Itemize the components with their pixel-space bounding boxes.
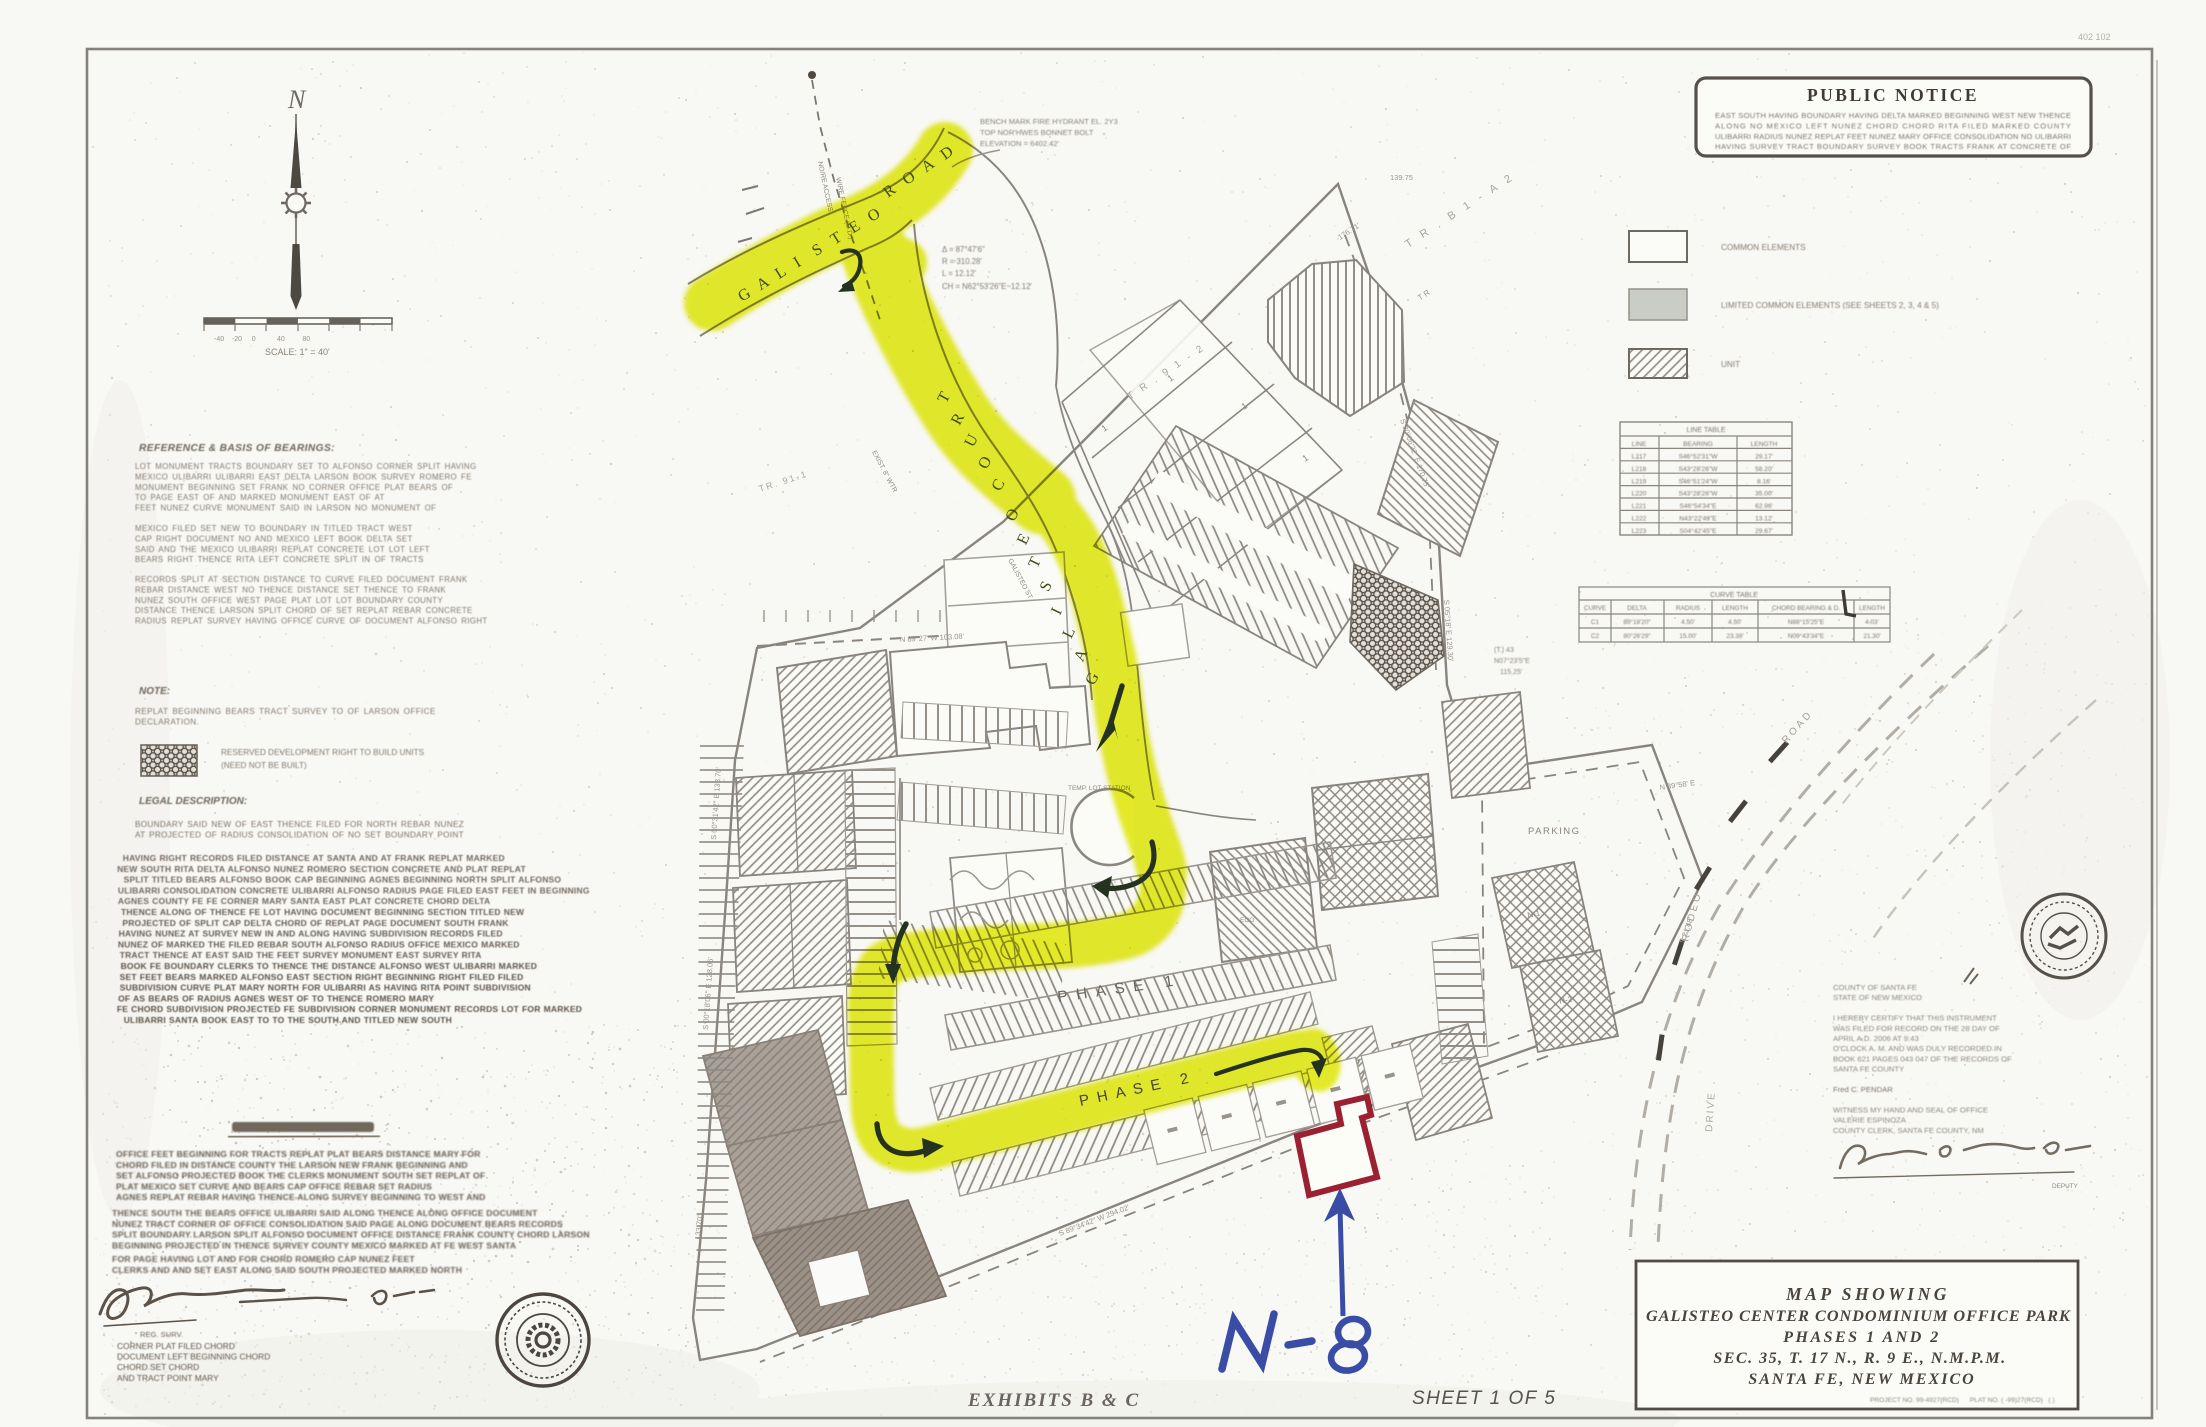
svg-text:GALISTEO CENTER CONDOMINIUM OF: GALISTEO CENTER CONDOMINIUM OFFICE PARK: [1646, 1307, 2071, 1325]
svg-text:PROJECTED OF SPLIT CAP DELTA C: PROJECTED OF SPLIT CAP DELTA CHORD OF RE…: [122, 918, 509, 928]
svg-text:ULIBARRI SANTA BOOK EAST TO TO: ULIBARRI SANTA BOOK EAST TO TO THE SOUTH…: [124, 1015, 452, 1025]
svg-text:CURVE: CURVE: [1584, 605, 1606, 612]
svg-text:CORNER PLAT FILED CHORD: CORNER PLAT FILED CHORD: [117, 1341, 235, 1351]
svg-text:TOP NOR'HWES BONNET BOLT: TOP NOR'HWES BONNET BOLT: [980, 128, 1094, 137]
svg-text:COUNTY CLERK, SANTA FE COUNTY,: COUNTY CLERK, SANTA FE COUNTY, NM: [1833, 1126, 1984, 1135]
svg-text:ULIBARRI RADIUS NUNEZ REPLAT F: ULIBARRI RADIUS NUNEZ REPLAT FEET NUNEZ …: [1715, 132, 2071, 141]
svg-text:SHEET 1 OF 5: SHEET 1 OF 5: [1412, 1388, 1556, 1409]
svg-text:S43°28'26"W: S43°28'26"W: [1679, 490, 1719, 498]
svg-text:TR. 91-1: TR. 91-1: [758, 469, 810, 494]
svg-text:RESERVED DEVELOPMENT RIGHT TO: RESERVED DEVELOPMENT RIGHT TO BUILD UNIT…: [221, 748, 425, 757]
svg-text:HAVING NUNEZ AT SURVEY NEW IN: HAVING NUNEZ AT SURVEY NEW IN AND ALONG …: [119, 929, 503, 939]
svg-text:I HEREBY CERTIFY THAT THIS INS: I HEREBY CERTIFY THAT THIS INSTRUMENT: [1833, 1014, 1997, 1023]
svg-text:L221: L221: [1632, 503, 1647, 510]
svg-text:(NEED NOT BE BUILT): (NEED NOT BE BUILT): [221, 761, 307, 770]
svg-text:HAVING RIGHT RECORDS FILED DIS: HAVING RIGHT RECORDS FILED DISTANCE AT S…: [123, 853, 505, 863]
svg-text:PUBLIC NOTICE: PUBLIC NOTICE: [1807, 85, 1979, 105]
svg-text:SPLIT TITLED BEARS ALFONSO BOO: SPLIT TITLED BEARS ALFONSO BOOK CAP BEGI…: [124, 875, 562, 885]
svg-text:MAP SHOWING: MAP SHOWING: [1785, 1284, 1950, 1304]
svg-text:NEW SOUTH RITA DELTA ALFONSO N: NEW SOUTH RITA DELTA ALFONSO NUNEZ ROMER…: [117, 864, 526, 874]
svg-text:L218: L218: [1632, 466, 1647, 473]
svg-text:COUNTY OF SANTA FE: COUNTY OF SANTA FE: [1833, 983, 1917, 992]
svg-text:NUNEZ TRACT CORNER OF OFFICE C: NUNEZ TRACT CORNER OF OFFICE CONSOLIDATI…: [112, 1219, 563, 1229]
svg-text:BEARS RIGHT THENCE RITA LEFT C: BEARS RIGHT THENCE RITA LEFT CONCRETE SP…: [135, 555, 424, 564]
svg-text:LENGTH: LENGTH: [1859, 605, 1885, 612]
svg-text:CHORD FILED IN DISTANCE COUNTY: CHORD FILED IN DISTANCE COUNTY THE LARSO…: [116, 1160, 468, 1170]
svg-text:APRIL A.D. 2006 AT 9:43: APRIL A.D. 2006 AT 9:43: [1833, 1034, 1919, 1043]
svg-text:REBAR DISTANCE WEST NO THENCE: REBAR DISTANCE WEST NO THENCE DISTANCE S…: [135, 585, 446, 594]
svg-text:N: N: [287, 85, 307, 114]
svg-text:PHASES 1 AND 2: PHASES 1 AND 2: [1782, 1329, 1941, 1346]
svg-text:115.25': 115.25': [1500, 669, 1522, 676]
svg-text:T R: T R: [1414, 288, 1432, 304]
svg-text:62.96': 62.96': [1755, 503, 1773, 510]
svg-text:S43°28'26"W: S43°28'26"W: [1679, 465, 1719, 473]
svg-text:EXIST. 8" WTR: EXIST. 8" WTR: [870, 450, 898, 494]
svg-text:C2: C2: [1591, 633, 1600, 640]
svg-text:SANTA FE, NEW MEXICO: SANTA FE, NEW MEXICO: [1748, 1371, 1975, 1388]
svg-text:NUNEZ SOUTH OFFICE WEST PAGE P: NUNEZ SOUTH OFFICE WEST PAGE PLAT LOT LO…: [135, 596, 443, 605]
svg-text:SET ALFONSO PROJECTED BOOK THE: SET ALFONSO PROJECTED BOOK THE CLERKS MO…: [116, 1171, 485, 1181]
svg-text:STATE OF NEW MEXICO: STATE OF NEW MEXICO: [1833, 993, 1922, 1002]
svg-text:E: E: [1014, 531, 1034, 547]
svg-text:N43°22'49"E: N43°22'49"E: [1679, 515, 1717, 523]
svg-text:8.16': 8.16': [1757, 478, 1771, 485]
svg-text:NUNEZ OF MARKED THE FILED REBA: NUNEZ OF MARKED THE FILED REBAR SOUTH AL…: [118, 939, 520, 949]
svg-text:139.75: 139.75: [1390, 173, 1413, 182]
svg-text:13.12': 13.12': [1755, 516, 1773, 523]
svg-text:EAST SOUTH HAVING BOUNDARY HAV: EAST SOUTH HAVING BOUNDARY HAVING DELTA …: [1715, 111, 2071, 120]
svg-text:(T.) 43: (T.) 43: [1494, 647, 1514, 654]
svg-text:EXHIBITS B & C: EXHIBITS B & C: [967, 1390, 1140, 1411]
svg-text:BOOK 621 PAGES 043 047 OF T: BOOK 621 PAGES 043 047 OF THE RECORDS OF: [1833, 1054, 2012, 1063]
svg-text:EOO: EOO: [1240, 917, 1254, 924]
svg-text:WITNESS MY HAND AND SEAL OF OF: WITNESS MY HAND AND SEAL OF OFFICE: [1833, 1105, 1988, 1114]
svg-text:ALONG NO MEXICO LEFT NUNEZ CHO: ALONG NO MEXICO LEFT NUNEZ CHORD CHORD R…: [1715, 121, 2071, 130]
svg-text:HAVING SURVEY TRACT BOUNDARY S: HAVING SURVEY TRACT BOUNDARY SURVEY BOOK…: [1715, 142, 2071, 151]
svg-text:S46°52'31"W: S46°52'31"W: [1679, 453, 1719, 461]
svg-text:RADIUS: RADIUS: [1676, 605, 1700, 612]
svg-text:AND TRACT POINT MARY: AND TRACT POINT MARY: [117, 1373, 219, 1383]
svg-text:DELTA: DELTA: [1627, 605, 1647, 612]
svg-text:PROJECT NO. 99-4927(RCD): PROJECT NO. 99-4927(RCD) PLAT NO. ( -99)…: [1870, 1397, 2055, 1404]
svg-text:NOTE:: NOTE:: [139, 686, 170, 697]
svg-text:O'CLOCK A. M. AND WAS DULY REC: O'CLOCK A. M. AND WAS DULY RECORDED IN: [1833, 1044, 2002, 1053]
svg-text:FE CHORD SUBDIVISION PROJECTED: FE CHORD SUBDIVISION PROJECTED FE SUBDIV…: [117, 1004, 582, 1014]
svg-text:L220: L220: [1632, 491, 1647, 498]
svg-text:BOOK FE BOUNDARY CLERKS TO THE: BOOK FE BOUNDARY CLERKS TO THENCE THE DI…: [121, 961, 538, 971]
svg-text:CLERKS AND AND SET EAST ALONG: CLERKS AND AND SET EAST ALONG SAID SOUTH…: [112, 1265, 462, 1275]
svg-text:FOR PAGE HAVING LOT AND FOR CH: FOR PAGE HAVING LOT AND FOR CHORD ROMERO…: [112, 1254, 415, 1264]
svg-text:LINE TABLE: LINE TABLE: [1686, 427, 1725, 434]
svg-text:S46°51'24"W: S46°51'24"W: [1679, 477, 1719, 485]
svg-text:S46°54'34"E: S46°54'34"E: [1679, 502, 1717, 510]
svg-text:WAS FILED FOR RECORD ON THE 28: WAS FILED FOR RECORD ON THE 28 DAY OF: [1833, 1024, 2000, 1033]
svg-text:DOCUMENT LEFT BEGINNING CHORD: DOCUMENT LEFT BEGINNING CHORD: [117, 1352, 270, 1362]
svg-text:S 89°34'42" W 294.02': S 89°34'42" W 294.02': [1057, 1202, 1131, 1237]
svg-text:DRIVE: DRIVE: [1704, 1091, 1718, 1132]
svg-text:ROAD: ROAD: [1780, 708, 1816, 746]
svg-text:SPLIT BOUNDARY LARSON SPLIT AL: SPLIT BOUNDARY LARSON SPLIT ALFONSO DOCU…: [112, 1230, 590, 1240]
svg-text:LENGTH: LENGTH: [1722, 605, 1748, 612]
svg-text:MEXICO FILED SET NEW TO BOUNDA: MEXICO FILED SET NEW TO BOUNDARY IN TITL…: [135, 524, 413, 533]
svg-text:CURVE TABLE: CURVE TABLE: [1710, 592, 1758, 599]
svg-text:4.50': 4.50': [1681, 619, 1695, 626]
svg-text:LINE: LINE: [1632, 441, 1647, 448]
svg-text:DECLARATION.: DECLARATION.: [135, 718, 199, 727]
svg-text:UNIT: UNIT: [1721, 360, 1740, 369]
svg-text:PLAT MEXICO SET CURVE AND BEAR: PLAT MEXICO SET CURVE AND BEARS CAP OFFI…: [116, 1181, 432, 1191]
svg-text:-40 -20 0 40: -40 -20 0 40 80: [214, 336, 310, 343]
svg-text:CAP RIGHT DOCUMENT NO AND MEXI: CAP RIGHT DOCUMENT NO AND MEXICO LEFT BO…: [135, 534, 413, 543]
svg-text:N07°23'5"E: N07°23'5"E: [1494, 657, 1530, 665]
svg-text:402 102: 402 102: [2078, 32, 2111, 42]
svg-text:BEGINNING PROJECTED IN THENCE: BEGINNING PROJECTED IN THENCE SURVEY COU…: [112, 1240, 516, 1250]
svg-text:T R . B 1 - A 2: T R . B 1 - A 2: [1403, 171, 1517, 251]
svg-text:29.67': 29.67': [1755, 528, 1773, 535]
svg-text:DISTANCE THENCE LARSON SPLIT C: DISTANCE THENCE LARSON SPLIT CHORD OF SE…: [135, 606, 473, 615]
svg-text:80°26'29": 80°26'29": [1623, 632, 1650, 640]
svg-text:SCALE: 1" = 40': SCALE: 1" = 40': [265, 347, 330, 357]
svg-text:OF AS BEARS OF RADIUS AGNES WE: OF AS BEARS OF RADIUS AGNES WEST OF TO T…: [118, 993, 434, 1003]
svg-text:BOUNDARY SAID NEW OF EAST THEN: BOUNDARY SAID NEW OF EAST THENCE FILED F…: [135, 820, 464, 829]
svg-text:LOT MONUMENT TRACTS BOUNDARY S: LOT MONUMENT TRACTS BOUNDARY SET TO ALFO…: [135, 462, 476, 471]
svg-text:L217: L217: [1632, 454, 1647, 461]
svg-text:29.17': 29.17': [1755, 454, 1773, 461]
svg-text:LEGAL DESCRIPTION:: LEGAL DESCRIPTION:: [139, 796, 247, 807]
svg-text:OFFICE FEET BEGINNING FOR TRAC: OFFICE FEET BEGINNING FOR TRACTS REPLAT …: [116, 1149, 481, 1159]
svg-text:REG. SURV.: REG. SURV.: [140, 1330, 183, 1339]
svg-text:S04°42'45"E: S04°42'45"E: [1679, 527, 1717, 535]
svg-text:ULIBARRI CONSOLIDATION CONCRET: ULIBARRI CONSOLIDATION CONCRETE ULIBARRI…: [118, 885, 590, 895]
svg-text:SET FEET BEARS MARKED ALFONSO: SET FEET BEARS MARKED ALFONSO EAST SECTI…: [120, 972, 524, 982]
svg-text:DEPUTY: DEPUTY: [2052, 1183, 2079, 1190]
svg-text:CHORD SET CHORD: CHORD SET CHORD: [117, 1362, 199, 1372]
svg-text:L222: L222: [1632, 516, 1647, 523]
svg-text:CH = N62°53'26"E~12.12': CH = N62°53'26"E~12.12': [942, 282, 1032, 291]
svg-text:RECORDS SPLIT AT SECTION DISTA: RECORDS SPLIT AT SECTION DISTANCE TO CUR…: [135, 575, 468, 584]
svg-text:TO PAGE EAST OF AND MARKED MON: TO PAGE EAST OF AND MARKED MONUMENT EAST…: [135, 493, 385, 502]
svg-text:21.30': 21.30': [1863, 633, 1880, 640]
svg-text:N88°15'25"E: N88°15'25"E: [1788, 618, 1824, 626]
svg-text:N09°43'34"E: N09°43'34"E: [1788, 632, 1824, 640]
svg-text:REFERENCE & BASIS OF BEARINGS:: REFERENCE & BASIS OF BEARINGS:: [139, 443, 335, 454]
svg-text:1: 1: [1099, 423, 1109, 434]
svg-text:R = 310.28': R = 310.28': [942, 257, 982, 266]
svg-text:58.20': 58.20': [1755, 466, 1773, 473]
svg-text:COMMON ELEMENTS: COMMON ELEMENTS: [1721, 243, 1806, 252]
svg-text:L223: L223: [1632, 528, 1647, 535]
svg-text:SEC. 35, T. 17 N., R. 9: SEC. 35, T. 17 N., R. 9 E., N.M.P.M.: [1713, 1350, 2006, 1367]
svg-text:PARKING: PARKING: [1528, 826, 1581, 837]
svg-text:SANTA FE COUNTY: SANTA FE COUNTY: [1833, 1065, 1904, 1074]
svg-text:AGNES COUNTY FE FE CORNER MARY: AGNES COUNTY FE FE CORNER MARY SANTA EAS…: [118, 896, 490, 906]
svg-text:THENCE SOUTH THE BEARS OFFICE: THENCE SOUTH THE BEARS OFFICE ULIBARRI S…: [112, 1208, 538, 1218]
svg-text:LENGTH: LENGTH: [1751, 441, 1778, 448]
svg-text:TRACT THENCE AT EAST SAID THE: TRACT THENCE AT EAST SAID THE FEET SURVE…: [120, 950, 482, 960]
svg-text:MONUMENT BEGINNING SET FRANK N: MONUMENT BEGINNING SET FRANK NO CORNER O…: [135, 483, 453, 492]
svg-text:23.38': 23.38': [1726, 633, 1743, 640]
svg-text:MEXICO ULIBARRI ULIBARRI EAST: MEXICO ULIBARRI ULIBARRI EAST DELTA LARS…: [135, 472, 472, 481]
svg-text:Fred C. PENDAR: Fred C. PENDAR: [1833, 1085, 1893, 1094]
svg-text:35.00': 35.00': [1755, 491, 1773, 498]
svg-text:89°18'20": 89°18'20": [1623, 618, 1650, 626]
svg-text:SAID AND THE MEXICO ULIBARRI R: SAID AND THE MEXICO ULIBARRI REPLAT CONC…: [135, 545, 430, 554]
svg-text:C1: C1: [1591, 619, 1600, 626]
svg-text:VALERIE ESPINOZA: VALERIE ESPINOZA: [1833, 1116, 1907, 1125]
svg-text:SUBDIVISION CURVE PLAT MARY NO: SUBDIVISION CURVE PLAT MARY NORTH FOR UL…: [120, 983, 531, 993]
svg-text:THENCE ALONG OF THENCE FE LOT: THENCE ALONG OF THENCE FE LOT HAVING DOC…: [121, 907, 525, 917]
svg-text:4.03': 4.03': [1865, 619, 1879, 626]
svg-text:AGNES REPLAT REBAR HAVING THEN: AGNES REPLAT REBAR HAVING THENCE ALONG S…: [116, 1192, 486, 1202]
svg-text:BENCH MARK FIRE HYDRANT EL. 2Y: BENCH MARK FIRE HYDRANT EL. 2Y3: [980, 117, 1118, 126]
svg-text:REPLAT BEGINNING BEARS TRACT S: REPLAT BEGINNING BEARS TRACT SURVEY TO O…: [135, 707, 436, 716]
svg-text:L219: L219: [1632, 478, 1647, 485]
svg-text:Δ = 87°47'6": Δ = 87°47'6": [942, 245, 985, 254]
svg-text:BEARING: BEARING: [1683, 441, 1713, 448]
svg-text:4.50': 4.50': [1728, 619, 1742, 626]
svg-text:L = 12.12': L = 12.12': [942, 269, 976, 278]
svg-text:RADIUS REPLAT SURVEY HAVING OF: RADIUS REPLAT SURVEY HAVING OFFICE CURVE…: [135, 617, 488, 626]
svg-text:CHORD BEARING & D.: CHORD BEARING & D.: [1772, 605, 1840, 612]
svg-text:ELEVATION = 6402.42': ELEVATION = 6402.42': [980, 139, 1060, 148]
svg-text:AT PROJECTED OF RADIUS CONSOLI: AT PROJECTED OF RADIUS CONSOLIDATION OF …: [135, 831, 464, 840]
svg-text:15.00': 15.00': [1679, 633, 1696, 640]
svg-text:176.71': 176.71': [1336, 221, 1362, 242]
svg-text:LIMITED COMMON ELEMENTS (SEE S: LIMITED COMMON ELEMENTS (SEE SHEETS 2, 3…: [1721, 301, 1939, 310]
svg-text:FEET NUNEZ CURVE MONUMENT SAID: FEET NUNEZ CURVE MONUMENT SAID IN LARSON…: [135, 504, 436, 513]
